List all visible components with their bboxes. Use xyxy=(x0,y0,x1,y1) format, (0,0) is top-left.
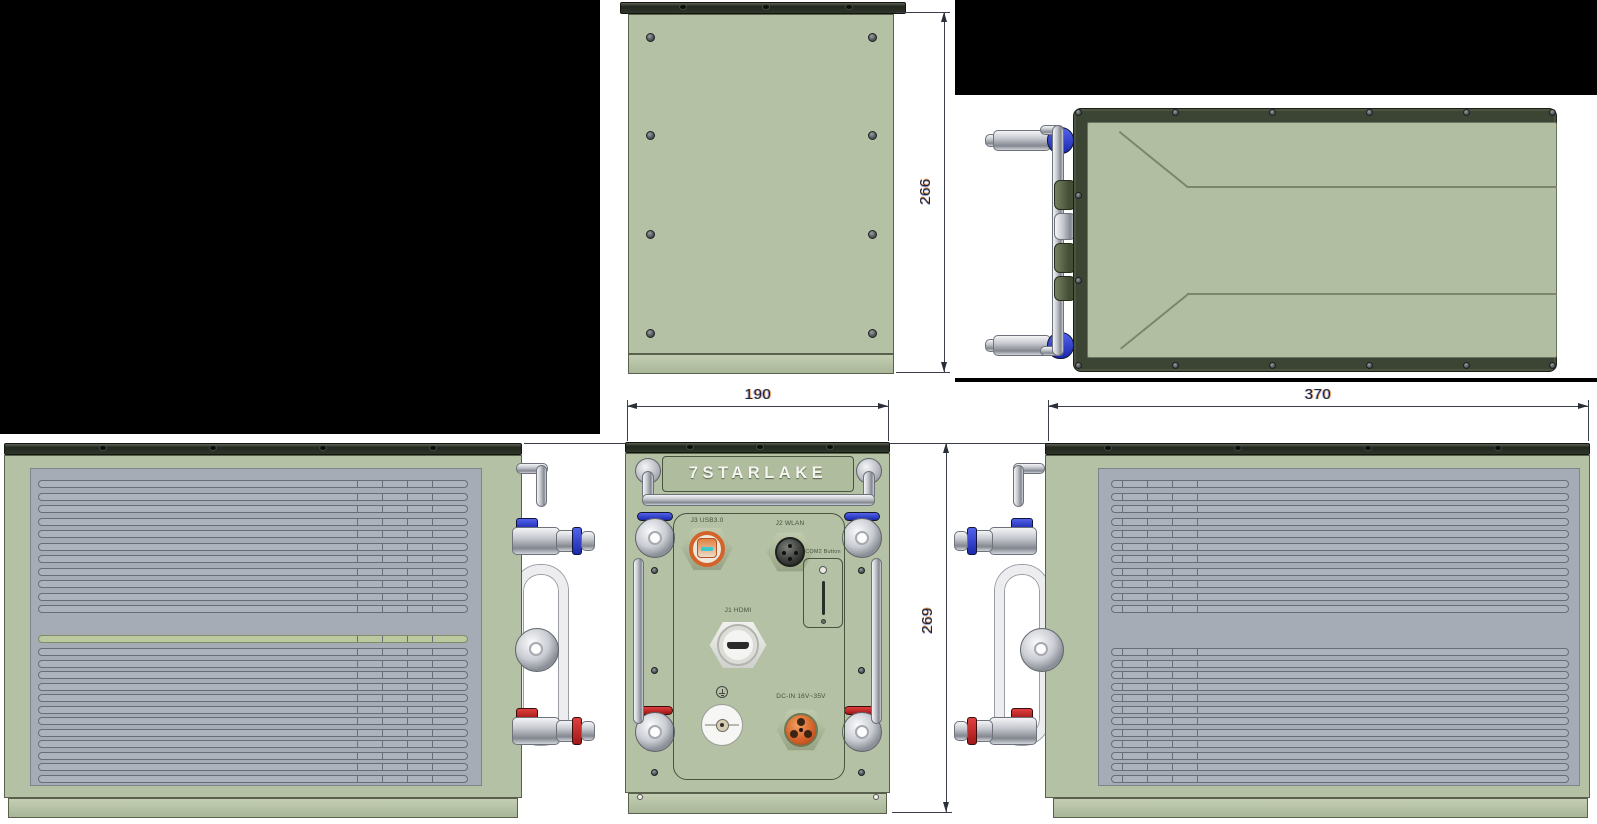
slat-grid xyxy=(357,581,457,587)
vent-slat xyxy=(1111,752,1569,760)
slat-grid xyxy=(1122,581,1222,587)
slat-grid xyxy=(357,569,457,575)
vent-slat xyxy=(1111,671,1569,679)
vent-slat xyxy=(38,763,468,771)
slat-grid xyxy=(1122,718,1222,724)
vent-slat xyxy=(1111,543,1569,551)
cap-screw xyxy=(1365,446,1371,450)
vent-slat xyxy=(38,671,468,679)
slat-grid xyxy=(357,606,457,612)
screw xyxy=(1075,277,1082,284)
vent-slat xyxy=(1111,530,1569,538)
vent-slat xyxy=(1111,568,1569,576)
logo-plate: 7STARLAKE xyxy=(662,456,854,492)
slat-grid xyxy=(1122,741,1222,747)
slat-grid xyxy=(1122,672,1222,678)
ground-lug xyxy=(701,704,743,746)
screw xyxy=(1463,362,1470,369)
vent-slat xyxy=(1111,729,1569,737)
vent-slat xyxy=(1111,717,1569,725)
vent-slat xyxy=(38,568,468,576)
vent-slat xyxy=(38,493,468,501)
vent-grille xyxy=(1098,468,1580,786)
cap-screw xyxy=(430,446,436,450)
vent-slat xyxy=(1111,763,1569,771)
cap-screw xyxy=(320,446,326,450)
slat-grid xyxy=(357,753,457,759)
vent-slat xyxy=(38,729,468,737)
screw xyxy=(646,131,655,140)
rear-bottom-flange xyxy=(628,354,894,374)
front-view: 7STARLAKE J3 USB3.0 xyxy=(625,442,893,817)
slat-grid xyxy=(357,594,457,600)
slat-grid xyxy=(1122,594,1222,600)
lid-chamfer-line xyxy=(1187,186,1557,188)
screw xyxy=(646,329,655,338)
slat-grid xyxy=(357,519,457,525)
screw xyxy=(1549,109,1556,116)
vent-slat xyxy=(1111,555,1569,563)
vent-slat xyxy=(1111,775,1569,783)
screw xyxy=(868,131,877,140)
slat-grid xyxy=(357,649,457,655)
slat-grid xyxy=(1122,481,1222,487)
side-connector xyxy=(515,628,559,672)
vent-slat xyxy=(38,694,468,702)
corner-fastener xyxy=(637,794,643,800)
vent-slat xyxy=(1111,480,1569,488)
screw xyxy=(1172,362,1179,369)
side-bottom-flange xyxy=(8,798,518,818)
vent-slat xyxy=(1111,493,1569,501)
slat-grid xyxy=(357,544,457,550)
coolant-port xyxy=(635,518,675,558)
slat-grid xyxy=(1122,753,1222,759)
right-side-view xyxy=(1045,443,1597,824)
vent-slat xyxy=(38,530,468,538)
slat-grid xyxy=(1122,606,1222,612)
screw xyxy=(868,230,877,239)
slat-grid xyxy=(1122,531,1222,537)
side-connector-pin xyxy=(529,642,543,656)
dc-in-label: DC-IN 16V~35V xyxy=(766,693,836,700)
slat-grid xyxy=(357,707,457,713)
rear-view xyxy=(618,2,918,377)
rear-height-value: 266 xyxy=(917,178,934,205)
vent-slat xyxy=(38,775,468,783)
slat-grid xyxy=(357,531,457,537)
slat-grid xyxy=(357,661,457,667)
vent-slat xyxy=(38,752,468,760)
vent-slat xyxy=(1111,683,1569,691)
slat-grid xyxy=(1122,649,1222,655)
slat-grid xyxy=(357,684,457,690)
screw xyxy=(646,33,655,42)
slat-grid xyxy=(357,672,457,678)
vent-slat xyxy=(38,717,468,725)
vent-slat xyxy=(38,480,468,488)
front-bottom-flange xyxy=(628,793,887,814)
vent-slat xyxy=(38,593,468,601)
screw xyxy=(1075,109,1082,116)
screw xyxy=(868,329,877,338)
slat-grid xyxy=(357,730,457,736)
wlan-label: J2 WLAN xyxy=(760,520,820,527)
ground-symbol xyxy=(716,686,728,698)
screw xyxy=(868,33,877,42)
button-slot xyxy=(822,581,825,615)
screw xyxy=(1172,109,1179,116)
vent-slat xyxy=(38,543,468,551)
slat-grid xyxy=(1122,506,1222,512)
screw xyxy=(651,567,658,574)
vent-slat xyxy=(38,706,468,714)
screw xyxy=(1463,109,1470,116)
slat-grid xyxy=(357,506,457,512)
slat-grid xyxy=(1122,776,1222,782)
plate-screw xyxy=(821,619,826,624)
cap-screw xyxy=(1105,446,1111,450)
vent-slat xyxy=(1111,518,1569,526)
slat-grid xyxy=(1122,684,1222,690)
screw xyxy=(651,769,658,776)
vent-slat xyxy=(38,660,468,668)
slat-grid xyxy=(357,636,457,642)
vent-slat xyxy=(1111,593,1569,601)
front-width-value: 190 xyxy=(728,386,788,403)
screw xyxy=(1366,362,1373,369)
screw xyxy=(651,667,658,674)
slide-rail xyxy=(633,558,644,724)
hdmi-slot xyxy=(727,642,749,649)
vent-slat xyxy=(38,555,468,563)
slat-grid xyxy=(357,776,457,782)
slat-grid xyxy=(1122,695,1222,701)
slat-grid xyxy=(1122,730,1222,736)
side-connector xyxy=(1020,628,1064,672)
cap-screw xyxy=(757,445,763,449)
vent-grille xyxy=(30,468,482,786)
usb-tab xyxy=(701,547,713,551)
vent-slat xyxy=(1111,706,1569,714)
lid-chamfer-line xyxy=(1187,293,1557,295)
cap-screw xyxy=(846,5,852,9)
vent-slat xyxy=(38,518,468,526)
screw xyxy=(1269,362,1276,369)
side-top-cap xyxy=(1045,443,1590,455)
side-length-value: 370 xyxy=(1288,386,1348,403)
vent-slat xyxy=(38,605,468,613)
hdmi-label: J1 HDMI xyxy=(708,607,768,614)
vent-slat xyxy=(1111,694,1569,702)
top-lid-panel xyxy=(1087,122,1557,358)
slat-grid xyxy=(357,695,457,701)
cap-screw xyxy=(210,446,216,450)
cap-screw xyxy=(100,446,106,450)
com2-button-plate xyxy=(803,558,843,628)
vent-slat xyxy=(38,505,468,513)
vent-slat xyxy=(38,635,468,643)
slat-grid xyxy=(357,718,457,724)
vent-slat xyxy=(1111,605,1569,613)
vent-slat xyxy=(1111,505,1569,513)
slat-grid xyxy=(1122,661,1222,667)
screw xyxy=(1366,109,1373,116)
screw xyxy=(646,230,655,239)
side-top-cap xyxy=(4,443,522,455)
slat-grid xyxy=(357,494,457,500)
cap-screw xyxy=(687,445,693,449)
rear-panel xyxy=(628,14,894,354)
screw xyxy=(1075,362,1082,369)
screw xyxy=(858,769,865,776)
vent-slat xyxy=(38,740,468,748)
front-height-value: 269 xyxy=(919,607,936,634)
vent-slat xyxy=(1111,660,1569,668)
vent-slat xyxy=(1111,648,1569,656)
screw xyxy=(858,667,865,674)
vent-slat xyxy=(38,683,468,691)
left-side-view xyxy=(4,443,604,824)
cap-screw xyxy=(763,5,769,9)
slat-grid xyxy=(1122,544,1222,550)
com2-button[interactable] xyxy=(819,566,827,574)
usb-label: J3 USB3.0 xyxy=(677,517,737,524)
button-label: COM2 Button xyxy=(793,549,853,555)
slat-grid xyxy=(1122,569,1222,575)
slat-grid xyxy=(357,556,457,562)
slat-grid xyxy=(357,764,457,770)
slat-grid xyxy=(1122,519,1222,525)
slat-grid xyxy=(1122,494,1222,500)
cap-screw xyxy=(680,5,686,9)
vent-slat xyxy=(38,648,468,656)
slat-grid xyxy=(1122,764,1222,770)
vent-slat xyxy=(1111,740,1569,748)
side-bottom-flange xyxy=(1053,798,1588,818)
top-view xyxy=(960,95,1597,378)
side-connector-pin xyxy=(1034,642,1048,656)
corner-fastener xyxy=(873,794,879,800)
brand-logo: 7STARLAKE xyxy=(689,464,827,483)
cap-screw xyxy=(827,445,833,449)
slide-rail xyxy=(871,558,882,724)
screw xyxy=(1549,362,1556,369)
slat-grid xyxy=(357,741,457,747)
screw xyxy=(1075,192,1082,199)
slat-grid xyxy=(1122,556,1222,562)
vent-slat xyxy=(1111,580,1569,588)
cap-screw xyxy=(1235,446,1241,450)
drawing-canvas: 266 xyxy=(0,0,1597,824)
screw xyxy=(858,567,865,574)
screw xyxy=(1269,109,1276,116)
slat-grid xyxy=(1122,707,1222,713)
cap-screw xyxy=(1495,446,1501,450)
vent-slat xyxy=(38,580,468,588)
slat-grid xyxy=(357,481,457,487)
